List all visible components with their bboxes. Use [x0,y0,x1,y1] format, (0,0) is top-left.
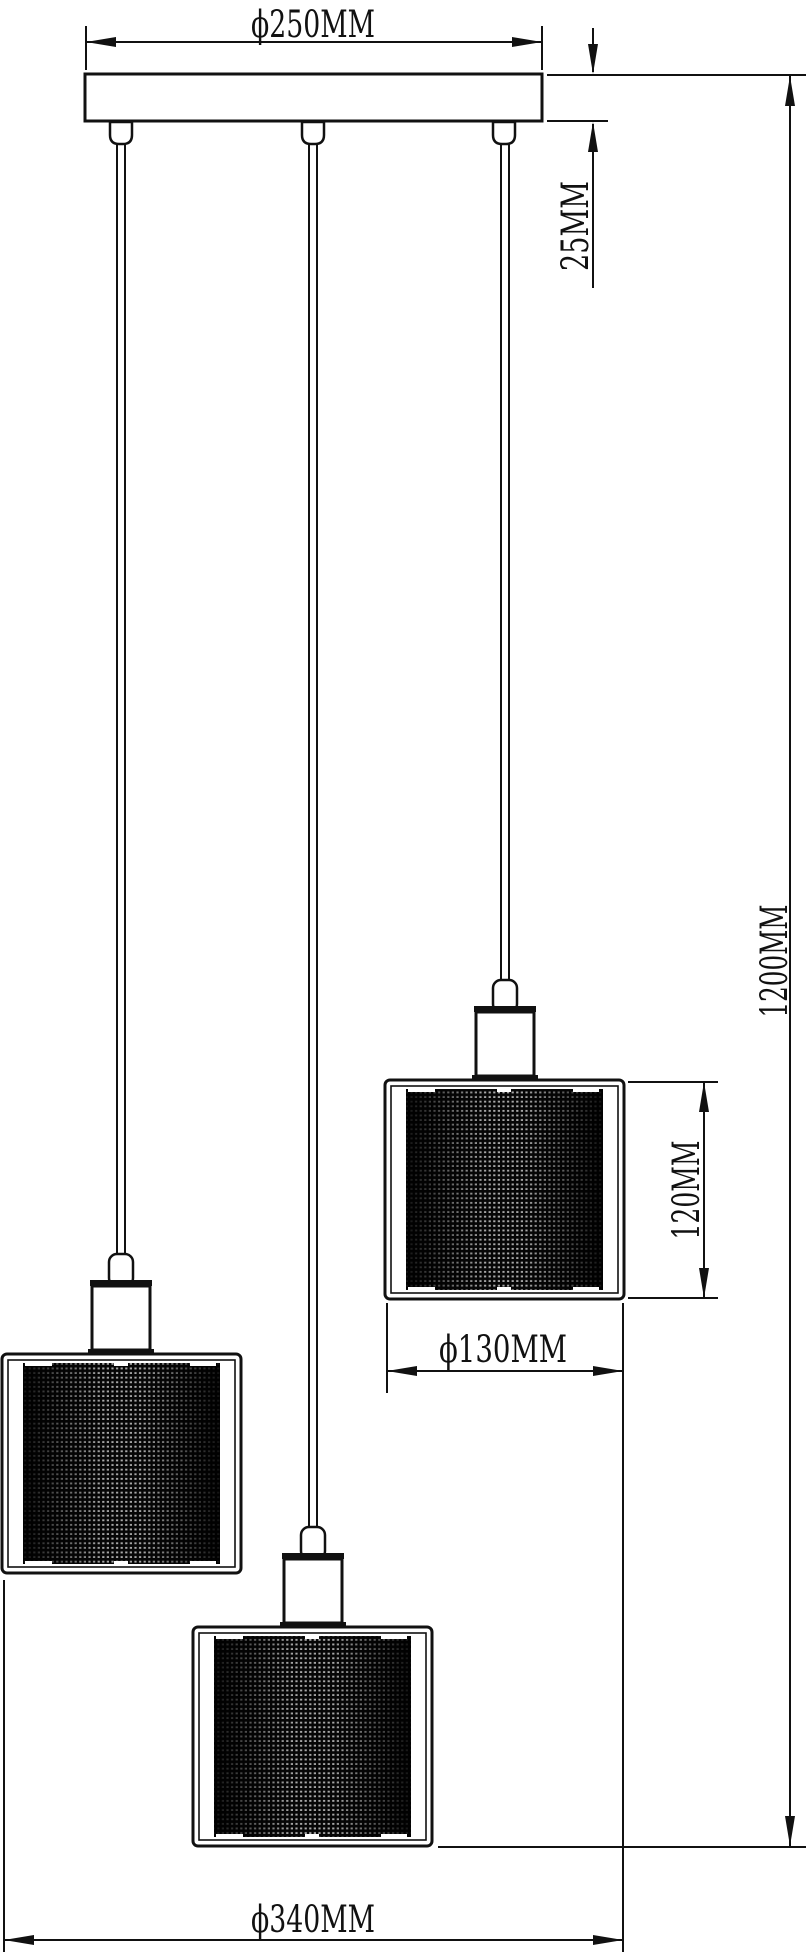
pendant-left [2,1254,241,1573]
dim-label-shade-height: 120MM [665,1141,708,1240]
suspension-cord-left [117,144,125,1260]
dimension-shade-height: 120MM [628,1082,718,1298]
suspension-cords [117,144,509,1534]
socket-body-middle [284,1559,342,1623]
arrowhead-right [593,1366,623,1376]
arrowhead-down [699,1268,709,1298]
arrowhead-left [86,37,116,47]
pendant-right [385,980,624,1299]
arrowhead-left [387,1366,417,1376]
lamp-shade-right [385,1080,624,1299]
cord-hanger-middle [302,122,324,144]
dim-label-shade-width: ϕ130MM [439,1328,567,1371]
dim-label-overall-width: ϕ340MM [251,1898,375,1941]
dim-label-canopy-height: 25MM [554,181,597,271]
shade-mesh-shading-left [23,1363,220,1564]
arrowhead-up [588,122,598,152]
lamp-shade-left [2,1354,241,1573]
cord-hanger-left [110,122,132,144]
pendant-middle [193,1527,432,1846]
dimension-canopy-width: ϕ250MM [86,3,542,70]
canopy-plate [85,74,542,121]
suspension-cord-middle [309,144,317,1534]
arrowhead-right [593,1935,623,1945]
shade-mesh-shading-right [406,1089,603,1290]
dimension-canopy-height: 25MM [547,28,806,288]
arrowhead-left [4,1935,34,1945]
arrowhead-down [785,1816,795,1846]
suspension-cord-right [501,144,509,987]
socket-body-right [476,1012,534,1076]
arrowhead-down [588,44,598,74]
arrowhead-right [512,37,542,47]
socket-body-left [92,1286,150,1350]
dim-label-canopy-width: ϕ250MM [251,3,375,46]
arrowhead-up [785,76,795,106]
pendant-lamp-dimension-drawing: ϕ250MM 25MM 1200MM 120MM ϕ130MM [0,0,808,1960]
dim-label-total-drop: 1200MM [753,905,796,1018]
cord-hanger-right [493,122,515,144]
ceiling-canopy [85,74,542,144]
shade-mesh-shading-middle [214,1636,411,1837]
lamp-shade-middle [193,1627,432,1846]
arrowhead-up [699,1082,709,1112]
technical-drawing-page: ϕ250MM 25MM 1200MM 120MM ϕ130MM [0,0,808,1960]
